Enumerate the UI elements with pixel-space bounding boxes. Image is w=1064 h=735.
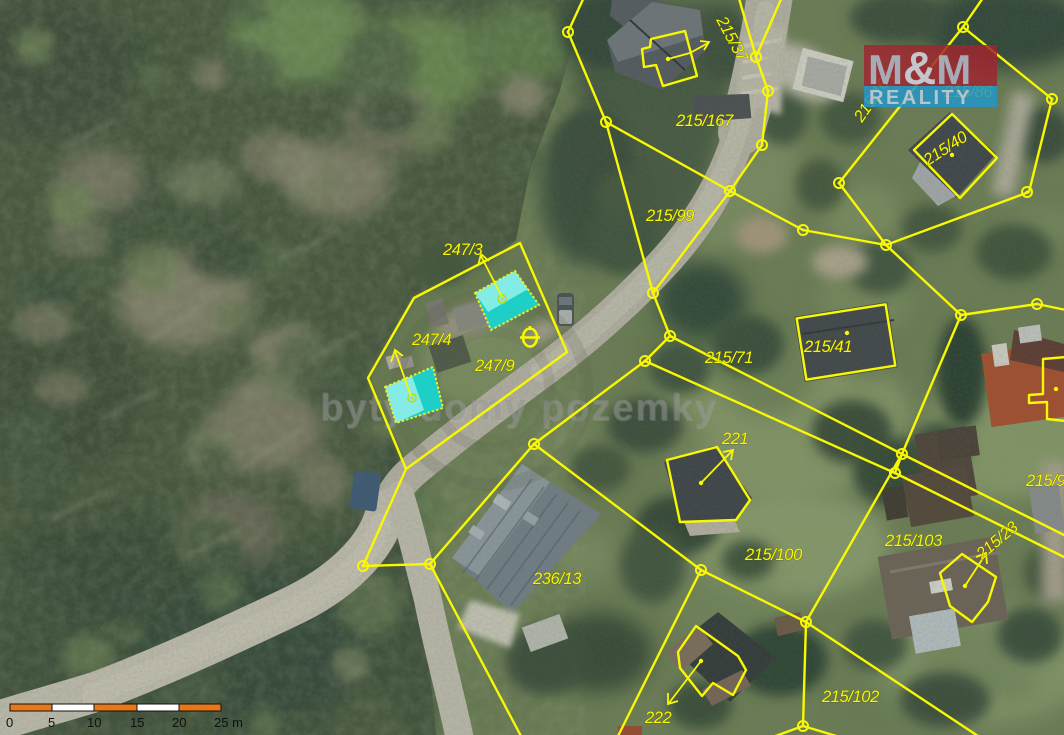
svg-text:215/102: 215/102 xyxy=(821,688,879,706)
svg-text:222: 222 xyxy=(644,709,672,727)
svg-text:215/9: 215/9 xyxy=(1025,472,1064,490)
svg-text:20: 20 xyxy=(172,715,186,730)
svg-text:215/100: 215/100 xyxy=(744,546,803,564)
svg-text:215/41: 215/41 xyxy=(803,338,852,356)
svg-text:247/9: 247/9 xyxy=(474,357,515,375)
svg-text:REALITY: REALITY xyxy=(869,87,972,109)
svg-text:236/13: 236/13 xyxy=(532,570,582,588)
svg-text:10: 10 xyxy=(87,715,101,730)
svg-text:215/71: 215/71 xyxy=(704,349,753,367)
svg-text:247/3: 247/3 xyxy=(442,241,484,259)
svg-text:247/4: 247/4 xyxy=(411,331,452,349)
svg-text:15: 15 xyxy=(130,715,144,730)
svg-text:215/103: 215/103 xyxy=(884,532,943,550)
svg-text:221: 221 xyxy=(721,430,748,448)
svg-text:215/99: 215/99 xyxy=(645,207,694,225)
svg-text:215/167: 215/167 xyxy=(675,112,734,130)
svg-text:5: 5 xyxy=(48,715,55,730)
svg-text:0: 0 xyxy=(6,715,13,730)
svg-text:25 m: 25 m xyxy=(214,715,243,730)
